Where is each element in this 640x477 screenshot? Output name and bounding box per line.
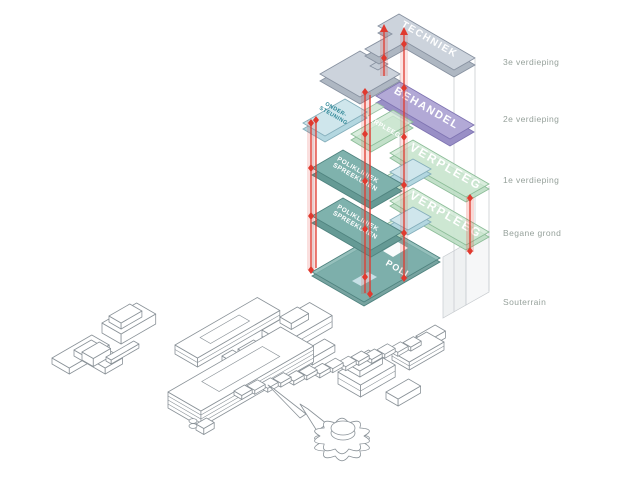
- floor-labels: 3e verdieping 2e verdieping 1e verdiepin…: [503, 57, 561, 307]
- floor-label-begane: Begane grond: [503, 228, 561, 238]
- floor-label-1e: 1e verdieping: [503, 175, 559, 185]
- floor-label-souterrain: Souterrain: [503, 297, 546, 307]
- floor-group-2e-verdieping: BEHANDEL VERPLEEG ONDER- STEUNING: [303, 82, 474, 152]
- floor-label-2e: 2e verdieping: [503, 114, 559, 124]
- program-stacking-diagram: POLI VERPLEEG POLIKLINIEK SPREEKUREN VER…: [0, 0, 640, 477]
- existing-buildings-wireframe: [52, 298, 445, 461]
- floor-label-3e: 3e verdieping: [503, 57, 559, 67]
